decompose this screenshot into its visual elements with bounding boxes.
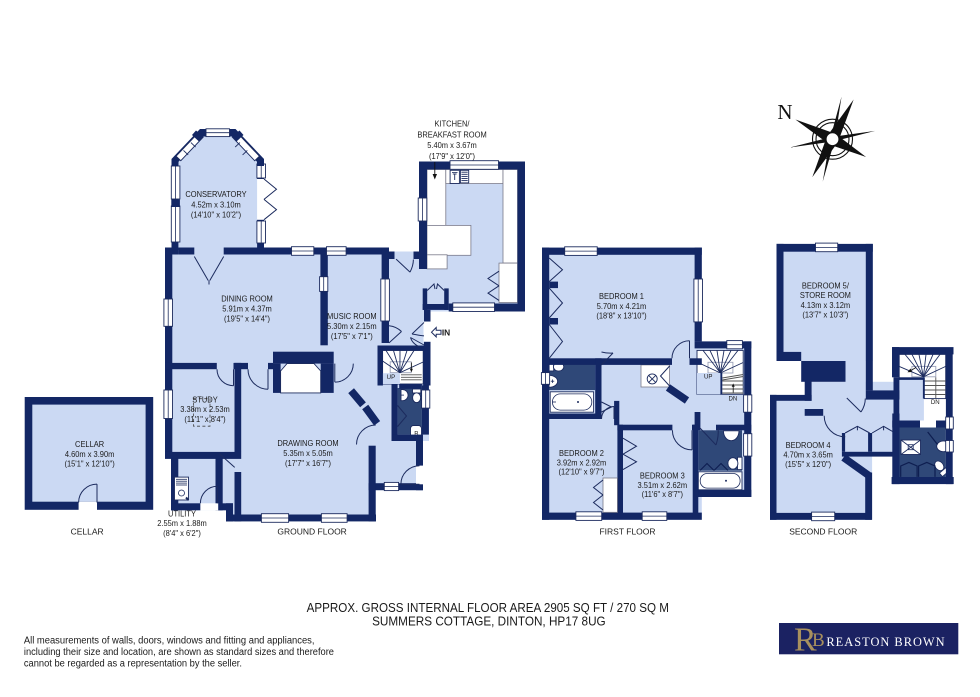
svg-text:(11'6" x 8'7"): (11'6" x 8'7") (642, 490, 684, 499)
svg-text:(17'9" x 12'0"): (17'9" x 12'0") (429, 152, 475, 161)
svg-text:UTILITY: UTILITY (168, 509, 196, 518)
svg-text:cannot be regarded as a repres: cannot be regarded as a representation b… (24, 658, 242, 669)
svg-text:5.35m x 5.05m: 5.35m x 5.05m (283, 449, 333, 458)
svg-text:SECOND FLOOR: SECOND FLOOR (789, 527, 857, 537)
svg-text:BEDROOM 2: BEDROOM 2 (559, 449, 604, 458)
svg-text:UP: UP (704, 373, 712, 380)
svg-text:BEDROOM 5/: BEDROOM 5/ (802, 281, 850, 290)
svg-text:STORE ROOM: STORE ROOM (800, 291, 851, 300)
svg-text:4.52m x 3.10m: 4.52m x 3.10m (191, 200, 241, 209)
svg-text:(14'10" x 10'2"): (14'10" x 10'2") (191, 210, 242, 219)
svg-text:CONSERVATORY: CONSERVATORY (185, 190, 246, 199)
svg-text:SUMMERS COTTAGE, DINTON, HP17: SUMMERS COTTAGE, DINTON, HP17 8UG (372, 614, 606, 629)
svg-text:(11'1" x 8'4"): (11'1" x 8'4") (184, 415, 226, 424)
svg-text:(15'5" x 12'0"): (15'5" x 12'0") (785, 460, 831, 469)
svg-text:CELLAR: CELLAR (71, 527, 104, 537)
svg-text:(15'1" x 12'10"): (15'1" x 12'10") (64, 459, 115, 468)
svg-text:N: N (777, 100, 792, 124)
svg-text:3.51m x 2.62m: 3.51m x 2.62m (638, 481, 688, 490)
svg-text:5.40m x 3.67m: 5.40m x 3.67m (427, 141, 477, 150)
svg-text:B: B (812, 630, 825, 651)
svg-text:STUDY: STUDY (192, 395, 217, 404)
svg-text:(8'4" x 6'2"): (8'4" x 6'2") (163, 529, 201, 538)
svg-text:(19'5" x 14'4"): (19'5" x 14'4") (224, 314, 270, 323)
svg-text:3.38m x 2.53m: 3.38m x 2.53m (180, 405, 230, 414)
svg-text:5.70m x 4.21m: 5.70m x 4.21m (597, 302, 647, 311)
svg-text:2.55m x 1.88m: 2.55m x 1.88m (157, 519, 207, 528)
svg-text:KITCHEN/: KITCHEN/ (435, 119, 471, 128)
svg-text:DRAWING ROOM: DRAWING ROOM (277, 439, 338, 448)
svg-text:UP: UP (387, 374, 395, 381)
svg-text:IN: IN (442, 328, 450, 338)
svg-text:including their size and locat: including their size and location, are s… (24, 647, 335, 658)
svg-text:DINING ROOM: DINING ROOM (221, 294, 273, 303)
svg-text:5.91m x 4.37m: 5.91m x 4.37m (222, 304, 272, 313)
svg-text:BEDROOM 4: BEDROOM 4 (786, 441, 832, 450)
svg-text:(17'7" x 16'7"): (17'7" x 16'7") (285, 459, 331, 468)
svg-text:4.60m x 3.90m: 4.60m x 3.90m (65, 450, 115, 459)
svg-text:FIRST FLOOR: FIRST FLOOR (599, 527, 655, 537)
svg-text:(13'7" x 10'3"): (13'7" x 10'3") (802, 310, 848, 319)
svg-text:4.13m x 3.12m: 4.13m x 3.12m (801, 301, 851, 310)
svg-text:(12'10" x 9'7"): (12'10" x 9'7") (558, 467, 604, 476)
svg-text:BREAKFAST ROOM: BREAKFAST ROOM (417, 130, 486, 139)
svg-text:5.30m x 2.15m: 5.30m x 2.15m (327, 322, 377, 331)
svg-text:REASTON BROWN: REASTON BROWN (826, 635, 945, 649)
svg-text:All measurements of walls, doo: All measurements of walls, doors, window… (24, 636, 315, 647)
svg-text:4.70m x 3.65m: 4.70m x 3.65m (783, 450, 833, 459)
svg-text:CELLAR: CELLAR (75, 440, 105, 449)
svg-text:DN: DN (931, 399, 940, 406)
svg-text:(18'8" x 13'10"): (18'8" x 13'10") (596, 311, 647, 320)
svg-text:BEDROOM 1: BEDROOM 1 (599, 292, 644, 301)
svg-text:BEDROOM 3: BEDROOM 3 (640, 472, 685, 481)
svg-text:(17'5" x 7'1"): (17'5" x 7'1") (331, 332, 373, 341)
svg-text:GROUND FLOOR: GROUND FLOOR (277, 527, 346, 537)
svg-text:DN: DN (729, 395, 738, 402)
svg-text:3.92m x 2.92m: 3.92m x 2.92m (557, 458, 607, 467)
svg-text:MUSIC ROOM: MUSIC ROOM (327, 312, 377, 321)
